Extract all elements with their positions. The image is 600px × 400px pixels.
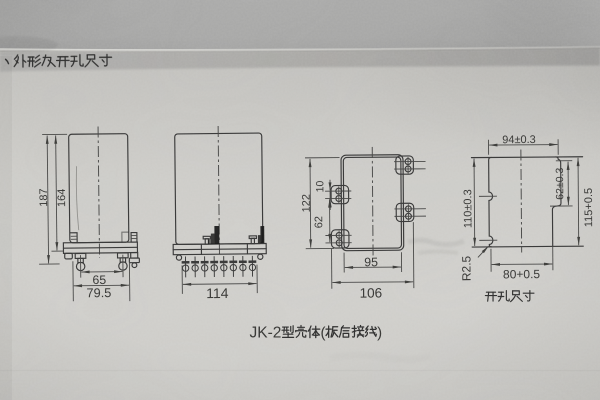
svg-text:62: 62 [313, 216, 325, 228]
svg-text:R2.5: R2.5 [459, 255, 473, 281]
svg-text:): ) [377, 324, 382, 341]
svg-text:110±0.3: 110±0.3 [462, 189, 474, 228]
svg-text:114: 114 [206, 285, 229, 301]
svg-text:JK-2: JK-2 [250, 324, 282, 341]
svg-text:(: ( [321, 324, 326, 341]
svg-text:95: 95 [364, 255, 378, 269]
svg-text:115+0.5: 115+0.5 [583, 188, 595, 227]
svg-text:94±0.3: 94±0.3 [502, 134, 536, 146]
svg-text:122: 122 [301, 194, 313, 212]
svg-text:10: 10 [314, 181, 326, 193]
svg-text:79.5: 79.5 [86, 285, 111, 300]
svg-text:62±0.3: 62±0.3 [554, 168, 566, 200]
svg-text:187: 187 [38, 188, 50, 206]
svg-text:106: 106 [359, 285, 382, 300]
svg-text:80+0.5: 80+0.5 [503, 267, 540, 281]
svg-text:164: 164 [56, 189, 68, 207]
